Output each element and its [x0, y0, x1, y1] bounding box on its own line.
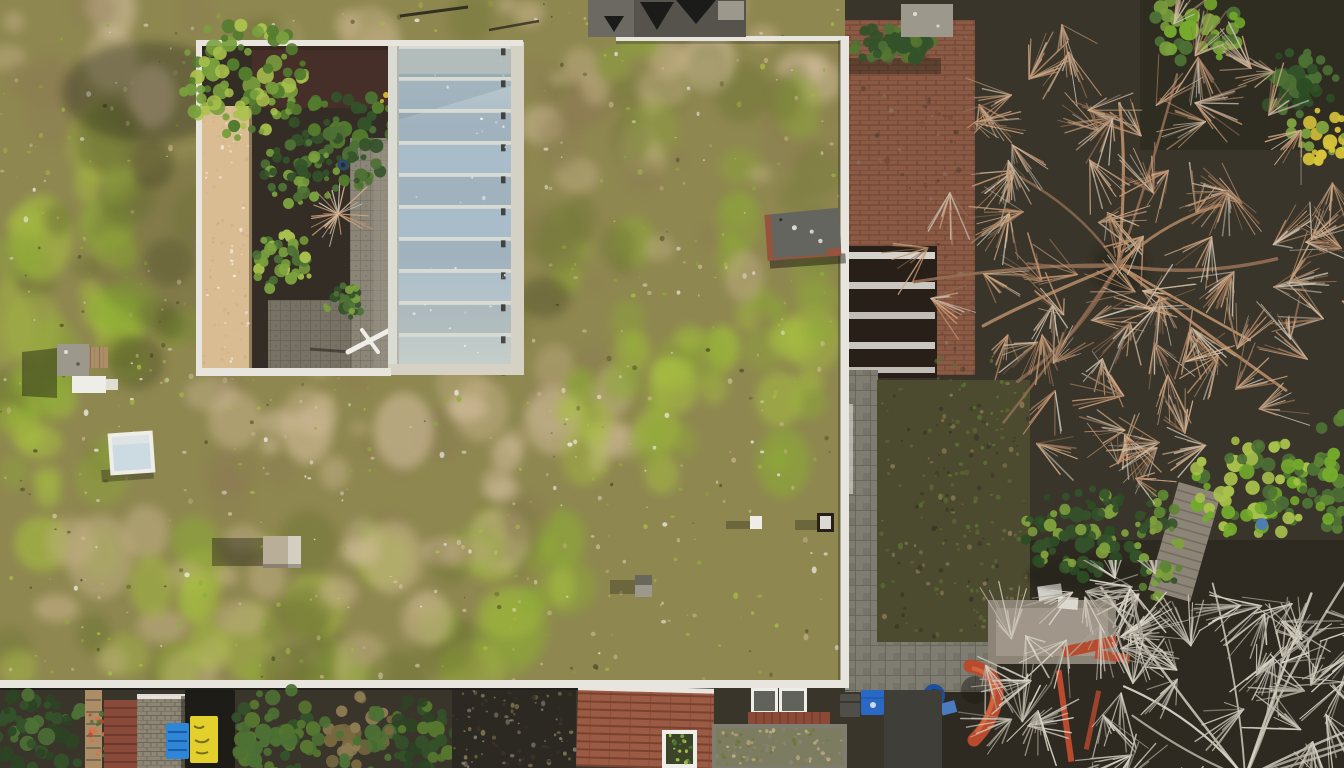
texture-speckle: [914, 629, 917, 632]
texture-speckle: [27, 151, 32, 154]
foliage-clump: [308, 123, 321, 136]
foliage-clump: [291, 268, 300, 277]
texture-speckle: [481, 694, 485, 698]
foliage-clump: [1255, 502, 1268, 515]
texture-speckle: [621, 60, 623, 62]
texture-speckle: [680, 464, 683, 467]
texture-speckle: [1020, 594, 1023, 596]
texture-speckle: [202, 121, 205, 123]
foliage-clump: [1262, 472, 1275, 485]
vegetation-patch: [184, 377, 238, 411]
texture-speckle: [587, 424, 589, 426]
texture-speckle: [990, 412, 993, 415]
vegetation-patch: [264, 456, 293, 485]
foliage-clump: [238, 44, 245, 51]
vegetation-patch: [756, 372, 803, 427]
foliage-clump: [860, 26, 870, 36]
texture-speckle: [942, 448, 947, 454]
foliage-clump: [1335, 127, 1341, 133]
texture-speckle: [515, 525, 520, 530]
foliage-clump: [1329, 112, 1340, 123]
foliage-clump: [1062, 493, 1070, 501]
texture-speckle: [80, 579, 82, 581]
foliage-clump: [1282, 512, 1294, 524]
texture-speckle: [571, 761, 573, 762]
texture-speckle: [160, 382, 163, 384]
texture-speckle: [34, 319, 36, 321]
foliage-clump: [38, 728, 55, 745]
foliage-clump: [272, 152, 282, 162]
texture-speckle: [1008, 479, 1012, 482]
texture-speckle: [794, 381, 796, 383]
texture-speckle: [662, 292, 667, 295]
texture-speckle: [969, 407, 974, 411]
foliage-clump: [323, 170, 330, 177]
foliage-clump: [297, 720, 306, 729]
texture-speckle: [732, 731, 734, 734]
texture-speckle: [1009, 447, 1014, 453]
texture-speckle: [907, 428, 910, 431]
foliage-clump: [1287, 118, 1297, 128]
texture-speckle: [686, 633, 690, 637]
texture-speckle: [74, 586, 78, 591]
texture-speckle: [820, 599, 822, 600]
texture-speckle: [619, 375, 622, 378]
texture-speckle: [513, 618, 517, 621]
texture-speckle: [861, 86, 866, 91]
texture-speckle: [817, 367, 821, 373]
texture-speckle: [514, 575, 517, 578]
window-opener: [501, 112, 506, 119]
texture-speckle: [823, 68, 826, 72]
texture-speckle: [215, 222, 219, 225]
texture-speckle: [454, 390, 459, 396]
texture-speckle: [935, 588, 939, 591]
texture-speckle: [959, 53, 961, 56]
texture-speckle: [271, 656, 275, 661]
texture-speckle: [44, 180, 46, 183]
texture-speckle: [940, 528, 943, 530]
texture-speckle: [88, 732, 93, 737]
texture-speckle: [435, 75, 436, 76]
texture-speckle: [966, 430, 970, 434]
texture-speckle: [519, 468, 522, 471]
texture-speckle: [561, 741, 564, 743]
texture-speckle: [938, 454, 941, 456]
texture-speckle: [163, 379, 168, 384]
vegetation-patch: [259, 410, 298, 436]
texture-speckle: [497, 605, 502, 609]
texture-speckle: [592, 477, 595, 481]
texture-speckle: [943, 172, 948, 176]
texture-speckle: [464, 755, 468, 759]
foliage-clump: [280, 731, 297, 748]
foliage-clump: [266, 82, 279, 95]
texture-speckle: [85, 491, 87, 494]
foliage-clump: [1323, 65, 1333, 75]
texture-speckle: [514, 697, 519, 700]
texture-speckle: [897, 562, 900, 565]
texture-speckle: [245, 157, 248, 161]
foliage-clump: [234, 134, 241, 141]
grey-bin: [840, 694, 860, 717]
texture-speckle: [276, 602, 281, 606]
texture-speckle: [442, 666, 444, 668]
texture-speckle: [940, 591, 944, 596]
foliage-clump: [289, 120, 296, 127]
texture-speckle: [239, 228, 242, 232]
foliage-clump: [1314, 457, 1324, 467]
foliage-clump: [263, 63, 273, 73]
texture-speckle: [959, 629, 963, 633]
texture-speckle: [824, 552, 828, 555]
texture-speckle: [632, 365, 637, 370]
foliage-clump: [404, 751, 414, 761]
texture-speckle: [996, 396, 999, 399]
texture-speckle: [698, 265, 702, 270]
texture-speckle: [216, 170, 218, 172]
texture-speckle: [566, 596, 568, 598]
foliage-clump: [306, 273, 311, 278]
vegetation-patch: [44, 203, 72, 235]
foliage-clump: [398, 725, 406, 733]
texture-speckle: [885, 440, 890, 443]
texture-speckle: [89, 160, 92, 162]
foliage-clump: [297, 186, 310, 199]
foliage-clump: [3, 707, 10, 714]
foliage-clump: [1322, 467, 1338, 483]
texture-speckle: [233, 290, 235, 292]
texture-speckle: [680, 734, 684, 738]
texture-speckle: [945, 562, 949, 565]
texture-speckle: [562, 245, 567, 248]
tiny-vent: [750, 516, 762, 529]
texture-speckle: [512, 608, 516, 612]
fascia-right: [840, 36, 849, 690]
texture-speckle: [468, 727, 472, 731]
pergola-slat: [845, 312, 935, 319]
chimney-speck: [76, 362, 80, 366]
foliage-clump: [1050, 510, 1057, 517]
texture-speckle: [781, 330, 785, 335]
vegetation-patch: [33, 467, 62, 490]
foliage-clump: [1275, 496, 1289, 510]
foliage-clump: [1091, 508, 1105, 522]
texture-speckle: [65, 619, 70, 625]
texture-speckle: [697, 112, 700, 116]
texture-speckle: [246, 325, 248, 327]
texture-speckle: [29, 144, 32, 148]
texture-speckle: [939, 356, 944, 362]
foliage-clump: [1130, 549, 1139, 558]
texture-speckle: [464, 311, 467, 314]
texture-speckle: [528, 764, 533, 767]
texture-speckle: [591, 632, 596, 636]
texture-speckle: [919, 550, 923, 554]
vegetation-patch: [573, 242, 594, 261]
foliage-clump: [1179, 41, 1193, 55]
texture-speckle: [941, 494, 945, 497]
foliage-clump: [1301, 128, 1311, 138]
texture-speckle: [39, 85, 44, 88]
texture-speckle: [749, 650, 751, 652]
texture-speckle: [810, 552, 813, 554]
texture-speckle: [1017, 537, 1022, 542]
texture-speckle: [468, 716, 471, 718]
texture-speckle: [608, 535, 610, 537]
atrium-right-border: [511, 42, 524, 374]
texture-speckle: [623, 560, 627, 564]
texture-speckle: [233, 141, 234, 142]
foliage-clump: [264, 243, 277, 256]
texture-speckle: [504, 274, 506, 277]
texture-speckle: [910, 561, 915, 564]
texture-speckle: [731, 458, 736, 463]
texture-speckle: [781, 318, 784, 320]
texture-speckle: [973, 501, 977, 504]
texture-speckle: [510, 754, 514, 757]
glass-mullion-bar: [398, 333, 511, 337]
gravel-edge: [249, 106, 252, 370]
texture-speckle: [554, 733, 556, 736]
texture-speckle: [952, 47, 957, 51]
texture-speckle: [494, 697, 496, 699]
texture-speckle: [712, 326, 714, 328]
texture-speckle: [669, 734, 672, 737]
texture-speckle: [547, 611, 552, 616]
texture-speckle: [130, 398, 134, 400]
foliage-clump: [19, 701, 28, 710]
texture-speckle: [774, 390, 778, 396]
texture-speckle: [347, 607, 349, 609]
texture-speckle: [137, 365, 141, 370]
texture-speckle: [39, 133, 43, 138]
texture-speckle: [603, 468, 607, 472]
texture-speckle: [682, 739, 685, 742]
texture-speckle: [314, 427, 317, 430]
texture-speckle: [228, 145, 230, 147]
foliage-clump: [1293, 478, 1301, 486]
texture-speckle: [222, 242, 225, 244]
foliage-clump: [1121, 529, 1129, 537]
texture-speckle: [83, 237, 86, 241]
foliage-clump: [1307, 488, 1317, 498]
texture-speckle: [206, 192, 208, 194]
texture-speckle: [1000, 428, 1004, 430]
twig: [1003, 680, 1031, 681]
texture-speckle: [457, 396, 462, 402]
texture-speckle: [939, 407, 944, 411]
pergola: [845, 246, 937, 378]
texture-speckle: [238, 463, 243, 466]
texture-speckle: [811, 93, 816, 97]
foliage-clump: [1316, 55, 1326, 65]
texture-speckle: [960, 471, 965, 475]
texture-speckle: [320, 675, 324, 679]
foliage-clump: [256, 93, 270, 107]
texture-speckle: [474, 755, 477, 759]
foliage-clump: [309, 97, 322, 110]
vegetation-patch: [364, 521, 423, 595]
texture-speckle: [512, 648, 515, 651]
texture-speckle: [214, 288, 216, 291]
texture-speckle: [467, 709, 471, 713]
texture-speckle: [99, 711, 104, 717]
foliage-clump: [1190, 462, 1203, 475]
texture-speckle: [168, 145, 173, 152]
texture-speckle: [955, 543, 959, 546]
texture-speckle: [746, 756, 750, 761]
texture-speckle: [948, 474, 953, 477]
texture-speckle: [970, 588, 973, 592]
texture-speckle: [824, 436, 828, 441]
texture-speckle: [557, 731, 561, 734]
texture-speckle: [951, 483, 954, 487]
foliage-clump: [44, 701, 52, 709]
texture-speckle: [212, 121, 214, 122]
texture-speckle: [812, 728, 815, 732]
foliage-clump: [252, 250, 261, 259]
foliage-clump: [45, 711, 54, 720]
texture-speckle: [213, 185, 216, 188]
texture-speckle: [944, 254, 948, 258]
foliage-clump: [372, 101, 384, 113]
glass-mullion-bar: [398, 237, 511, 241]
texture-speckle: [543, 90, 545, 92]
twig: [1052, 306, 1053, 333]
texture-speckle: [286, 648, 291, 654]
texture-speckle: [772, 746, 776, 749]
chimney-speck: [64, 350, 68, 354]
texture-speckle: [829, 142, 833, 145]
glass-mullion-bar: [398, 141, 511, 145]
texture-speckle: [791, 70, 793, 72]
texture-speckle: [504, 715, 508, 718]
texture-speckle: [784, 136, 788, 141]
chimney-shadow: [22, 348, 57, 398]
texture-speckle: [969, 530, 971, 532]
texture-speckle: [970, 301, 974, 305]
foliage-clump: [1296, 78, 1312, 94]
texture-speckle: [569, 731, 573, 734]
texture-speckle: [893, 394, 896, 398]
foliage-clump: [285, 139, 296, 150]
texture-speckle: [759, 671, 762, 674]
texture-speckle: [977, 485, 982, 491]
vegetation-patch: [520, 586, 548, 617]
texture-speckle: [42, 212, 44, 214]
texture-speckle: [718, 740, 722, 744]
texture-speckle: [749, 510, 752, 513]
texture-speckle: [97, 648, 100, 652]
foliage-clump: [184, 49, 190, 55]
texture-speckle: [820, 341, 825, 346]
foliage-clump: [263, 748, 271, 756]
texture-speckle: [444, 398, 449, 402]
foliage-clump: [239, 732, 255, 748]
foliage-clump: [1025, 521, 1031, 527]
texture-speckle: [996, 452, 998, 455]
texture-speckle: [246, 229, 248, 230]
foliage-clump: [1049, 536, 1059, 546]
yellow-flower: [380, 99, 384, 103]
texture-speckle: [84, 302, 86, 304]
window-opener: [501, 304, 506, 311]
foliage-clump: [1149, 11, 1161, 23]
texture-speckle: [692, 523, 694, 524]
texture-speckle: [242, 207, 245, 210]
texture-speckle: [575, 456, 578, 458]
texture-speckle: [25, 275, 27, 277]
texture-speckle: [596, 544, 600, 549]
texture-speckle: [990, 473, 994, 478]
texture-speckle: [560, 141, 563, 144]
texture-speckle: [89, 728, 93, 732]
foliage-clump: [238, 67, 252, 81]
texture-speckle: [241, 254, 243, 255]
texture-speckle: [794, 96, 798, 100]
foliage-clump: [189, 77, 196, 84]
foliage-clump: [286, 43, 298, 55]
texture-speckle: [549, 410, 552, 413]
texture-speckle: [950, 140, 953, 144]
texture-speckle: [502, 125, 504, 128]
texture-speckle: [611, 634, 613, 636]
texture-speckle: [881, 583, 886, 589]
foliage-clump: [384, 726, 394, 736]
texture-speckle: [565, 418, 568, 420]
texture-speckle: [107, 637, 111, 640]
shed-speck: [913, 12, 917, 16]
texture-speckle: [301, 383, 304, 386]
texture-speckle: [882, 614, 887, 619]
texture-speckle: [571, 268, 574, 271]
texture-speckle: [250, 420, 254, 424]
texture-speckle: [583, 73, 587, 76]
vegetation-patch: [34, 594, 79, 622]
texture-speckle: [564, 423, 566, 425]
foliage-clump: [278, 183, 287, 192]
texture-speckle: [349, 469, 354, 472]
foliage-clump: [339, 753, 349, 763]
texture-speckle: [221, 219, 224, 222]
vegetation-patch: [441, 537, 466, 566]
texture-speckle: [35, 146, 37, 148]
texture-speckle: [778, 324, 780, 327]
texture-speckle: [660, 236, 665, 241]
foliage-clump: [348, 314, 353, 319]
vegetation-patch: [557, 393, 587, 420]
foliage-clump: [6, 690, 19, 703]
texture-speckle: [299, 659, 303, 663]
texture-speckle: [610, 483, 613, 486]
texture-speckle: [659, 186, 663, 191]
texture-speckle: [942, 542, 944, 545]
foliage-clump: [1303, 116, 1317, 130]
texture-speckle: [826, 757, 830, 761]
corner-box-lid: [820, 516, 831, 529]
texture-speckle: [1014, 533, 1017, 536]
red-tile-roof: [576, 685, 719, 768]
texture-speckle: [238, 270, 240, 273]
texture-speckle: [676, 247, 680, 251]
texture-speckle: [670, 515, 675, 518]
texture-speckle: [15, 176, 17, 178]
texture-speckle: [556, 304, 560, 306]
foliage-clump: [324, 153, 330, 159]
texture-speckle: [390, 576, 392, 577]
texture-speckle: [1014, 392, 1017, 394]
